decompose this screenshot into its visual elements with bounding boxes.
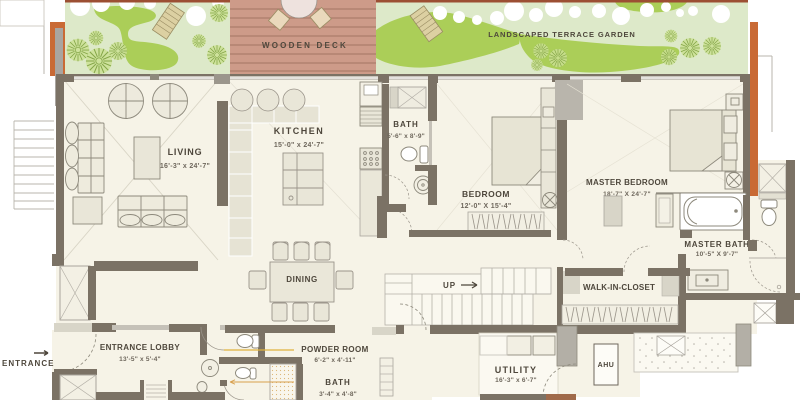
svg-text:POWDER ROOM: POWDER ROOM xyxy=(301,345,369,354)
svg-text:BEDROOM: BEDROOM xyxy=(462,189,510,199)
svg-text:16'-3" x 24'-7": 16'-3" x 24'-7" xyxy=(160,163,210,170)
svg-text:15'-0" x 24'-7": 15'-0" x 24'-7" xyxy=(274,142,324,149)
svg-text:ENTRANCE: ENTRANCE xyxy=(2,359,54,368)
svg-text:AHU: AHU xyxy=(598,362,615,369)
svg-text:KITCHEN: KITCHEN xyxy=(274,126,325,136)
svg-text:MASTER BATH: MASTER BATH xyxy=(684,240,749,249)
svg-text:16'-3" x 6'-7": 16'-3" x 6'-7" xyxy=(495,377,537,384)
svg-text:WALK-IN-CLOSET: WALK-IN-CLOSET xyxy=(583,283,655,292)
svg-text:6'-2" x 4'-11": 6'-2" x 4'-11" xyxy=(314,357,355,364)
svg-text:3'-4" x 4'-8": 3'-4" x 4'-8" xyxy=(319,391,357,398)
svg-text:WOODEN DECK: WOODEN DECK xyxy=(262,41,348,50)
svg-text:5'-6" x 8'-9": 5'-6" x 8'-9" xyxy=(387,133,425,140)
svg-text:UP: UP xyxy=(443,281,456,290)
svg-text:12'-0" X 15'-4": 12'-0" X 15'-4" xyxy=(460,203,511,210)
svg-text:LANDSCAPED TERRACE GARDEN: LANDSCAPED TERRACE GARDEN xyxy=(488,30,636,39)
svg-text:BATH: BATH xyxy=(393,120,419,129)
svg-text:LIVING: LIVING xyxy=(168,147,203,157)
svg-text:MASTER BEDROOM: MASTER BEDROOM xyxy=(586,178,668,187)
svg-text:13'-5" x 5'-4": 13'-5" x 5'-4" xyxy=(119,356,161,363)
svg-text:ENTRANCE LOBBY: ENTRANCE LOBBY xyxy=(100,343,181,352)
svg-text:BATH: BATH xyxy=(325,378,351,387)
svg-text:10'-5" X 9'-7": 10'-5" X 9'-7" xyxy=(696,251,738,258)
svg-text:UTILITY: UTILITY xyxy=(495,365,537,375)
svg-text:DINING: DINING xyxy=(286,275,318,284)
